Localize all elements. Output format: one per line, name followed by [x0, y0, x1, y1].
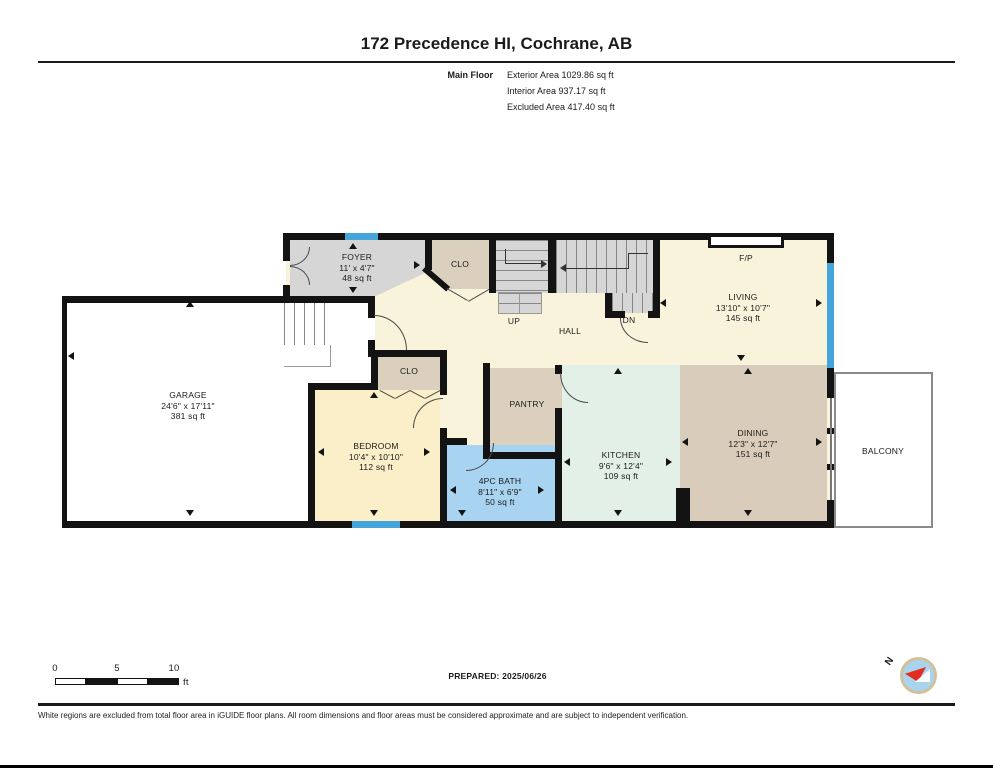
- room-name: FOYER: [297, 252, 417, 263]
- room-name: BEDROOM: [316, 441, 436, 452]
- dimension-arrow: [614, 510, 622, 516]
- down-arrow-line: [628, 253, 629, 269]
- fireplace-niche: [708, 234, 784, 248]
- room-dims: 9'6" x 12'4": [561, 461, 681, 472]
- dimension-arrow: [816, 438, 822, 446]
- room-area: 145 sq ft: [683, 313, 803, 324]
- dimension-arrow: [349, 243, 357, 249]
- scale-label-5: 5: [110, 664, 124, 675]
- dimension-arrow: [744, 368, 752, 374]
- wall-segment: [483, 452, 562, 459]
- dimension-arrow: [370, 510, 378, 516]
- pantry-floor: [490, 368, 562, 452]
- balcony-label: BALCONY: [823, 446, 943, 457]
- room-area: 381 sq ft: [128, 411, 248, 422]
- bedroom-closet-label: CLO: [379, 366, 439, 377]
- window-marker: [827, 263, 834, 368]
- dimension-arrow: [744, 510, 752, 516]
- dimension-arrow: [737, 355, 745, 361]
- fireplace-label: F/P: [716, 253, 776, 264]
- wall-segment: [368, 350, 447, 357]
- room-name: GARAGE: [128, 390, 248, 401]
- wall-segment: [283, 296, 375, 303]
- floor-plan-page: 172 Precedence HI, Cochrane, AB Main Flo…: [0, 0, 993, 768]
- room-area: 48 sq ft: [297, 273, 417, 284]
- dimension-arrow: [458, 510, 466, 516]
- kitchen-label: KITCHEN 9'6" x 12'4" 109 sq ft: [561, 450, 681, 482]
- stair-landing-line: [284, 366, 331, 367]
- dimension-arrow: [370, 392, 378, 398]
- room-name: 4PC BATH: [440, 476, 560, 487]
- wall-segment: [653, 240, 660, 318]
- scale-segment: [148, 678, 179, 685]
- bedroom-label: BEDROOM 10'4" x 10'10" 112 sq ft: [316, 441, 436, 473]
- window-marker: [345, 233, 378, 240]
- room-dims: 13'10" x 10'7": [683, 303, 803, 314]
- room-dims: 8'11" x 6'9": [440, 487, 560, 498]
- pantry-label: PANTRY: [467, 399, 587, 410]
- room-dims: 12'3" x 12'7": [693, 439, 813, 450]
- wall-segment: [62, 296, 67, 528]
- compass-icon: N: [884, 650, 944, 700]
- dimension-arrow: [816, 299, 822, 307]
- foyer-label: FOYER 11' x 4'7" 48 sq ft: [297, 252, 417, 284]
- prepared-date: PREPARED: 2025/06/26: [390, 671, 605, 682]
- garage-label: GARAGE 24'6" x 17'11" 381 sq ft: [128, 390, 248, 422]
- wall-segment: [283, 233, 290, 261]
- room-name: DINING: [693, 428, 813, 439]
- room-dims: 10'4" x 10'10": [316, 452, 436, 463]
- wall-segment: [62, 296, 291, 303]
- wall-segment: [827, 368, 834, 398]
- wall-segment: [827, 233, 834, 263]
- header-divider: [38, 61, 955, 63]
- room-area: 109 sq ft: [561, 471, 681, 482]
- dimension-arrow: [660, 299, 666, 307]
- scale-label-0: 0: [48, 664, 62, 675]
- room-area: 151 sq ft: [693, 449, 813, 460]
- scale-segment: [117, 678, 148, 685]
- footer-divider: [38, 703, 955, 706]
- stair-landing-line: [330, 345, 331, 367]
- wall-segment: [308, 383, 378, 390]
- down-arrow-line: [628, 253, 648, 254]
- down-label: DN: [599, 315, 659, 326]
- exterior-area-stat: Exterior Area 1029.86 sq ft: [507, 70, 614, 81]
- room-name: KITCHEN: [561, 450, 681, 461]
- down-stairs: [556, 240, 653, 293]
- dimension-arrow: [682, 438, 688, 446]
- room-dims: 24'6" x 17'11": [128, 401, 248, 412]
- room-name: LIVING: [683, 292, 803, 303]
- excluded-area-stat: Excluded Area 417.40 sq ft: [507, 102, 615, 113]
- upper-closet-label: CLO: [430, 259, 490, 270]
- up-stairs-lower: [499, 293, 541, 313]
- scale-bar: [55, 678, 179, 685]
- up-arrow-line: [505, 263, 541, 264]
- wall-segment: [62, 521, 834, 528]
- disclaimer-text: White regions are excluded from total fl…: [38, 711, 958, 720]
- up-arrow-head: [541, 260, 547, 268]
- compass-north-label: N: [883, 655, 896, 667]
- scale-unit: ft: [183, 678, 203, 689]
- wall-segment: [440, 350, 447, 395]
- floor-label: Main Floor: [343, 70, 493, 81]
- dimension-arrow: [68, 352, 74, 360]
- wall-segment: [308, 383, 315, 521]
- up-arrow-line: [505, 249, 506, 264]
- interior-area-stat: Interior Area 937.17 sq ft: [507, 86, 606, 97]
- wall-segment: [489, 240, 496, 293]
- scale-segment: [86, 678, 117, 685]
- down-stairs-lower: [612, 293, 653, 313]
- scale-segment: [55, 678, 86, 685]
- room-dims: 11' x 4'7": [297, 263, 417, 274]
- room-area: 50 sq ft: [440, 497, 560, 508]
- living-label: LIVING 13'10" x 10'7" 145 sq ft: [683, 292, 803, 324]
- wall-segment: [827, 500, 834, 528]
- dimension-arrow: [186, 301, 194, 307]
- dining-label: DINING 12'3" x 12'7" 151 sq ft: [693, 428, 813, 460]
- wall-segment: [676, 488, 690, 521]
- dimension-arrow: [349, 287, 357, 293]
- wall-segment: [440, 438, 467, 445]
- wall-segment: [548, 240, 556, 293]
- up-label: UP: [484, 316, 544, 327]
- scale-label-10: 10: [164, 664, 184, 675]
- window-marker: [352, 521, 400, 528]
- bath-label: 4PC BATH 8'11" x 6'9" 50 sq ft: [440, 476, 560, 508]
- room-area: 112 sq ft: [316, 462, 436, 473]
- basement-stair-treads: [284, 303, 330, 345]
- hall-label: HALL: [540, 326, 600, 337]
- dimension-arrow: [186, 510, 194, 516]
- page-title: 172 Precedence HI, Cochrane, AB: [0, 34, 993, 54]
- down-arrow-line: [566, 268, 628, 269]
- stair-line: [519, 293, 520, 313]
- dimension-arrow: [614, 368, 622, 374]
